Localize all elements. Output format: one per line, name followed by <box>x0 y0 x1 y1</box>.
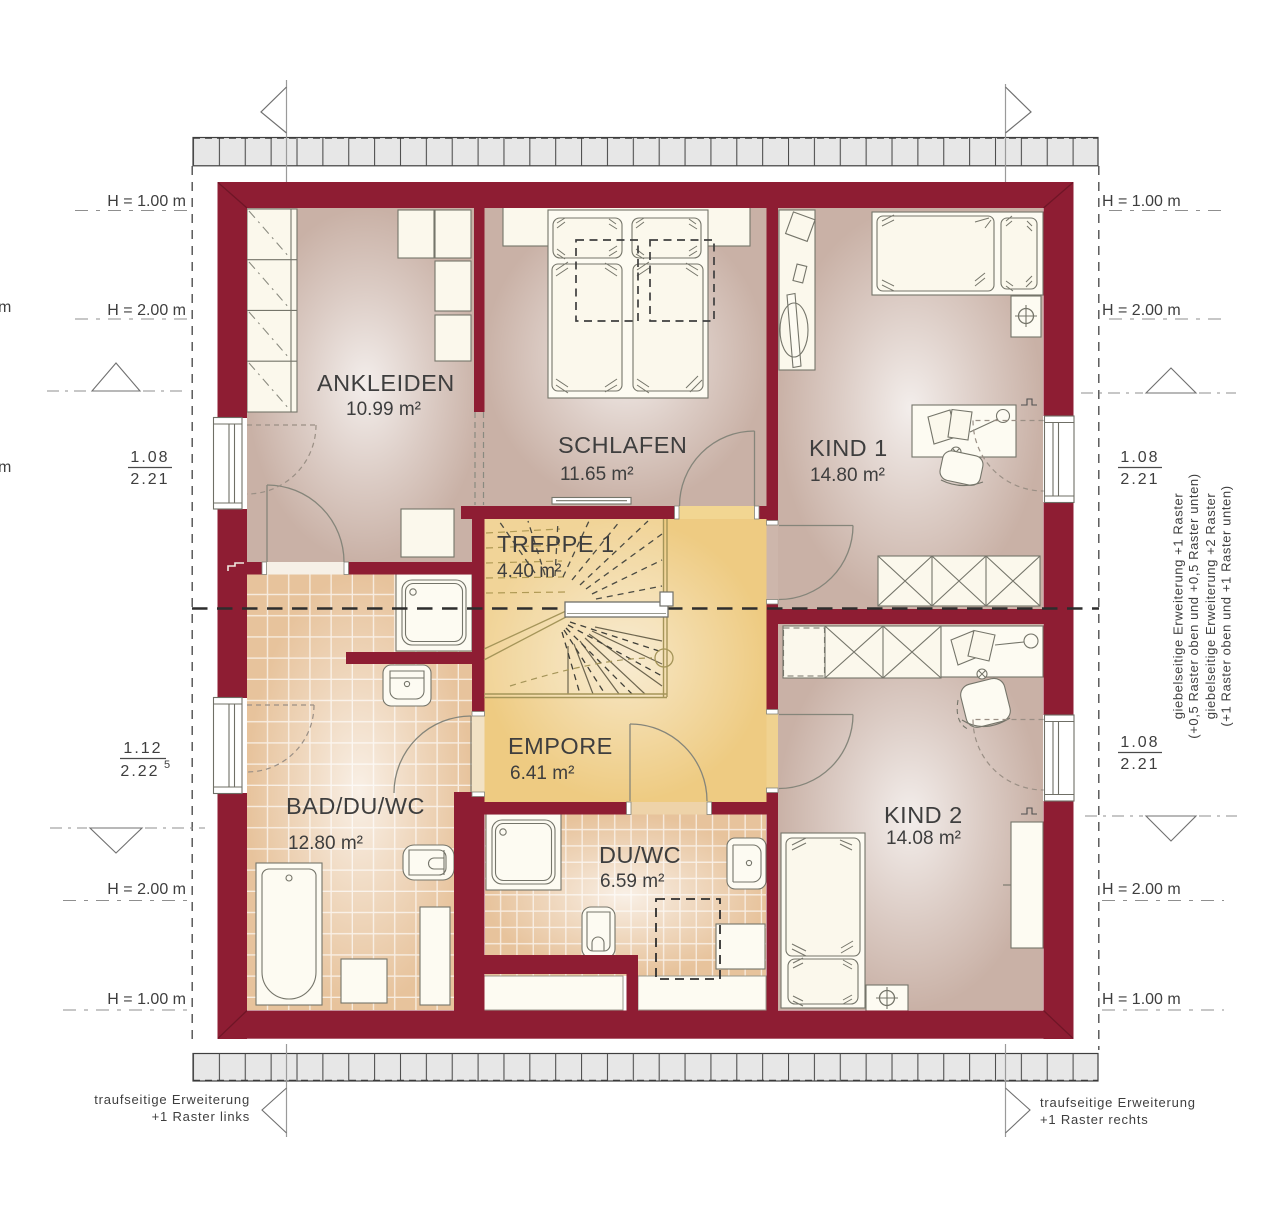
svg-text:KIND 1: KIND 1 <box>809 435 888 461</box>
svg-text:1.08: 1.08 <box>1120 449 1159 466</box>
svg-text:KIND 2: KIND 2 <box>884 802 963 828</box>
svg-text:giebelseitige Erweiterung +2 R: giebelseitige Erweiterung +2 Raster <box>1203 493 1218 720</box>
svg-text:H = 2.00 m: H = 2.00 m <box>107 881 186 898</box>
svg-text:EMPORE: EMPORE <box>508 733 613 759</box>
svg-text:H = 1.00 m: H = 1.00 m <box>1102 991 1181 1008</box>
svg-text:(+0,5 Raster oben und +0,5 Ras: (+0,5 Raster oben und +0,5 Raster unten) <box>1186 473 1201 738</box>
svg-text:5: 5 <box>164 759 170 771</box>
svg-text:BAD/DU/WC: BAD/DU/WC <box>286 793 425 819</box>
svg-text:H = 2.00 m: H = 2.00 m <box>1102 302 1181 319</box>
svg-text:6.41 m²: 6.41 m² <box>510 763 574 784</box>
svg-text:m: m <box>0 459 11 476</box>
svg-text:+1 Raster rechts: +1 Raster rechts <box>1040 1112 1149 1127</box>
svg-text:14.80 m²: 14.80 m² <box>810 465 885 486</box>
svg-text:traufseitige Erweiterung: traufseitige Erweiterung <box>94 1092 250 1107</box>
svg-text:6.59 m²: 6.59 m² <box>600 871 664 892</box>
svg-text:11.65 m²: 11.65 m² <box>560 464 634 485</box>
svg-text:SCHLAFEN: SCHLAFEN <box>558 432 687 458</box>
svg-text:H = 2.00 m: H = 2.00 m <box>107 302 186 319</box>
svg-text:TREPPE 1: TREPPE 1 <box>497 531 615 557</box>
svg-text:1.12: 1.12 <box>123 740 162 757</box>
svg-text:(+1 Raster oben und +1 Raster: (+1 Raster oben und +1 Raster unten) <box>1219 485 1234 726</box>
svg-text:traufseitige Erweiterung: traufseitige Erweiterung <box>1040 1095 1196 1110</box>
svg-text:DU/WC: DU/WC <box>599 842 681 868</box>
svg-text:2.21: 2.21 <box>1120 756 1159 773</box>
svg-text:1.08: 1.08 <box>1120 734 1159 751</box>
svg-text:H = 1.00 m: H = 1.00 m <box>107 193 186 210</box>
svg-text:14.08 m²: 14.08 m² <box>886 828 961 849</box>
svg-text:4.40 m²: 4.40 m² <box>497 561 561 582</box>
svg-text:10.99 m²: 10.99 m² <box>346 399 421 420</box>
svg-text:ANKLEIDEN: ANKLEIDEN <box>317 370 455 396</box>
svg-text:+1 Raster links: +1 Raster links <box>152 1109 250 1124</box>
svg-text:2.22: 2.22 <box>120 763 159 780</box>
svg-text:m: m <box>0 299 11 316</box>
svg-text:H = 2.00 m: H = 2.00 m <box>1102 881 1181 898</box>
svg-text:12.80 m²: 12.80 m² <box>288 833 363 854</box>
svg-text:2.21: 2.21 <box>130 471 169 488</box>
svg-text:H = 1.00 m: H = 1.00 m <box>1102 193 1181 210</box>
svg-text:2.21: 2.21 <box>1120 471 1159 488</box>
svg-text:H = 1.00 m: H = 1.00 m <box>107 991 186 1008</box>
svg-text:giebelseitige Erweiterung +1 R: giebelseitige Erweiterung +1 Raster <box>1171 493 1186 720</box>
svg-text:1.08: 1.08 <box>130 449 169 466</box>
